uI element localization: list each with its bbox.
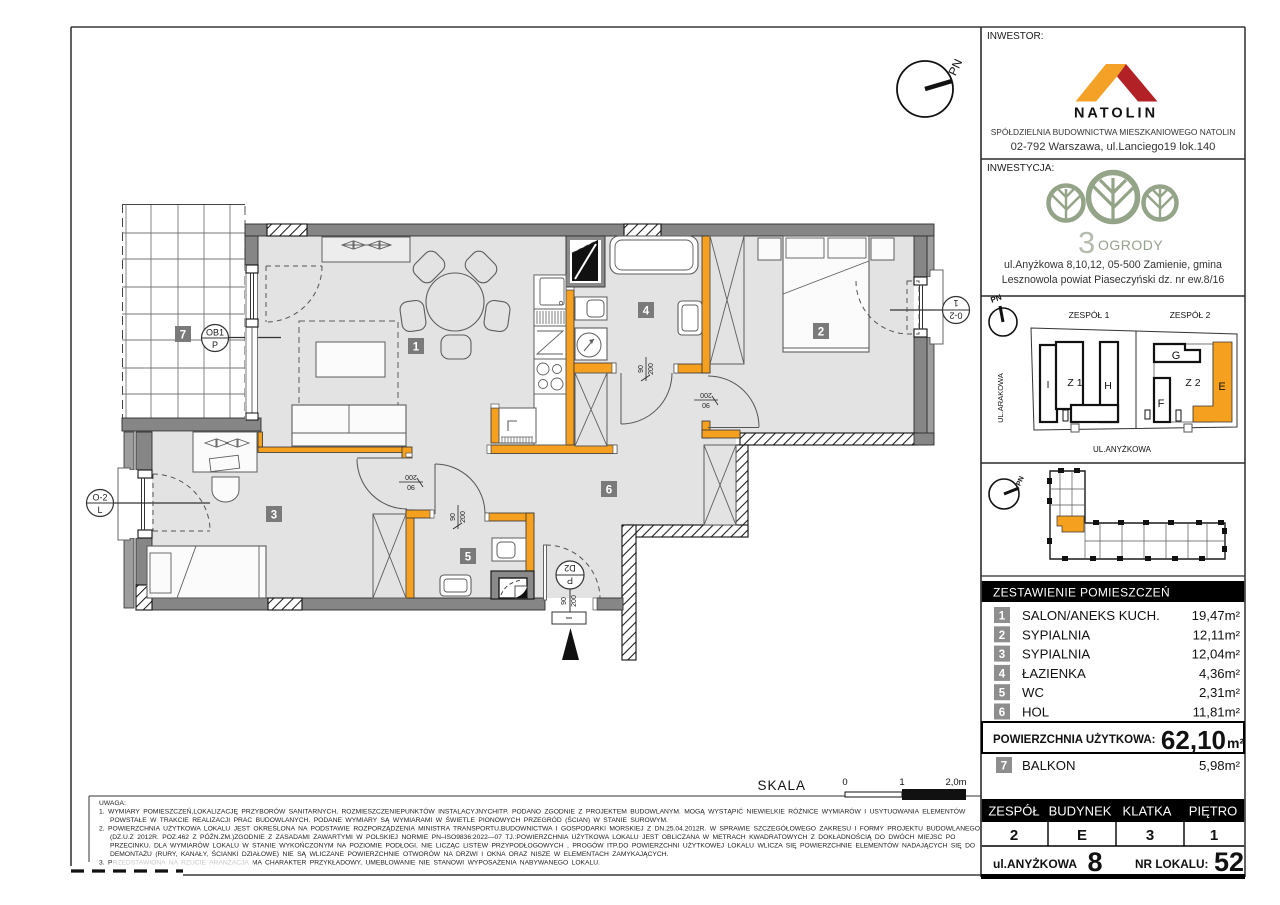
svg-text:H: H — [1104, 380, 1112, 392]
svg-text:ul.ANYŻKOWA: ul.ANYŻKOWA — [993, 856, 1077, 871]
svg-text:4: 4 — [999, 668, 1006, 680]
svg-text:BALKON: BALKON — [1022, 758, 1076, 773]
svg-text:3: 3 — [1146, 827, 1154, 844]
svg-text:1: 1 — [899, 777, 904, 788]
svg-text:4,36m²: 4,36m² — [1199, 666, 1241, 681]
svg-text:Z 2: Z 2 — [1185, 377, 1200, 389]
svg-text:200: 200 — [700, 391, 712, 398]
svg-text:90: 90 — [638, 365, 645, 373]
svg-text:UL.ARAKOWA: UL.ARAKOWA — [996, 373, 1005, 423]
svg-text:SPÓŁDZIELNIA BUDOWNICTWA MIESZ: SPÓŁDZIELNIA BUDOWNICTWA MIESZKANIOWEGO … — [991, 127, 1236, 137]
svg-text:PIĘTRO: PIĘTRO — [1189, 804, 1237, 819]
svg-text:1: 1 — [1210, 827, 1218, 844]
svg-text:90: 90 — [561, 597, 568, 605]
svg-text:02-792 Warszawa, ul.Lanciego19: 02-792 Warszawa, ul.Lanciego19 lok.140 — [1011, 141, 1216, 153]
svg-text:52: 52 — [1214, 847, 1244, 877]
svg-text:INWESTYCJA:: INWESTYCJA: — [987, 163, 1054, 174]
svg-text:2,0m: 2,0m — [945, 777, 966, 788]
svg-text:INWESTOR:: INWESTOR: — [987, 31, 1043, 42]
svg-text:E: E — [1077, 827, 1087, 844]
svg-text:90: 90 — [702, 401, 710, 408]
svg-text:UWAGA:: UWAGA: — [99, 800, 126, 807]
svg-text:1: 1 — [953, 298, 958, 308]
svg-text:ZESPÓŁ 2: ZESPÓŁ 2 — [1170, 310, 1211, 320]
svg-text:ZESPÓŁ: ZESPÓŁ — [988, 804, 1039, 819]
svg-text:SALON/ANEKS KUCH.: SALON/ANEKS KUCH. — [1022, 608, 1160, 623]
svg-text:4: 4 — [643, 306, 650, 318]
svg-text:3: 3 — [999, 649, 1005, 661]
svg-text:PRZECINKU. DLA WYMIARÓW LOKALU: PRZECINKU. DLA WYMIARÓW LOKALU W STANIE … — [110, 841, 975, 850]
svg-text:200: 200 — [648, 363, 655, 375]
svg-text:O-2: O-2 — [92, 493, 107, 503]
svg-text:2,31m²: 2,31m² — [1199, 685, 1241, 700]
svg-text:5,98m²: 5,98m² — [1199, 758, 1241, 773]
svg-text:12,04m²: 12,04m² — [1192, 647, 1241, 662]
svg-text:ŁAZIENKA: ŁAZIENKA — [1022, 666, 1086, 681]
svg-text:0: 0 — [842, 777, 847, 788]
svg-text:L: L — [97, 505, 102, 515]
svg-text:Lesznowola powiat Piaseczyński: Lesznowola powiat Piaseczyński dz. nr ew… — [1002, 274, 1225, 286]
svg-text:P: P — [567, 576, 573, 586]
svg-text:POWSTAŁE W TRAKCIE REALIZACJI: POWSTAŁE W TRAKCIE REALIZACJI PRAC BUDOW… — [110, 815, 668, 824]
svg-text:OB1: OB1 — [206, 328, 224, 338]
svg-text:ul.Anyżkowa 8,10,12, 05-500 Za: ul.Anyżkowa 8,10,12, 05-500 Zamienie, gm… — [1004, 259, 1222, 271]
svg-text:6: 6 — [999, 707, 1005, 719]
svg-text:HOL: HOL — [1022, 705, 1049, 720]
svg-text:P: P — [212, 340, 218, 350]
svg-text:m²: m² — [1227, 735, 1244, 751]
svg-text:D2: D2 — [564, 563, 576, 573]
svg-text:NATOLIN: NATOLIN — [1074, 106, 1158, 122]
svg-text:19,47m²: 19,47m² — [1192, 608, 1241, 623]
svg-text:90: 90 — [450, 513, 457, 521]
svg-text:KLATKA: KLATKA — [1123, 804, 1172, 819]
svg-text:2. POWIERZCHNIA UŻYTKOWA LOKAL: 2. POWIERZCHNIA UŻYTKOWA LOKALU JEST OKR… — [99, 824, 980, 833]
svg-text:ZESTAWIENIE POMIESZCZEŃ: ZESTAWIENIE POMIESZCZEŃ — [993, 585, 1170, 600]
svg-text:90: 90 — [407, 483, 415, 490]
svg-text:5: 5 — [999, 688, 1006, 700]
svg-text:BUDYNEK: BUDYNEK — [1049, 804, 1112, 819]
svg-text:POWIERZCHNIA UŻYTKOWA:: POWIERZCHNIA UŻYTKOWA: — [993, 733, 1155, 746]
svg-text:ZESPÓŁ 1: ZESPÓŁ 1 — [1069, 310, 1110, 320]
svg-text:5: 5 — [465, 552, 472, 564]
svg-text:Z 1: Z 1 — [1067, 377, 1082, 389]
svg-text:7: 7 — [180, 330, 186, 342]
svg-text:DEMONTAŻU (RURY, KANAŁY, ŚCIAN: DEMONTAŻU (RURY, KANAŁY, ŚCIANKI DZIAŁOW… — [110, 849, 669, 858]
svg-text:200: 200 — [571, 595, 578, 607]
svg-text:7: 7 — [1001, 761, 1007, 773]
svg-text:G: G — [1172, 350, 1181, 362]
svg-text:3: 3 — [271, 510, 277, 522]
svg-text:UL.ANYŻKOWA: UL.ANYŻKOWA — [1093, 445, 1152, 454]
svg-text:1: 1 — [413, 342, 420, 354]
svg-text:12,11m²: 12,11m² — [1193, 627, 1241, 642]
svg-text:WC: WC — [1022, 685, 1044, 700]
svg-text:2: 2 — [999, 630, 1005, 642]
svg-text:(DZ.U.Z 2012R. POZ.462 Z PÓŹN.: (DZ.U.Z 2012R. POZ.462 Z PÓŹN.ZM.)ZGODNI… — [110, 832, 955, 841]
svg-text:OGRODY: OGRODY — [1098, 237, 1163, 253]
svg-text:SKALA: SKALA — [757, 778, 806, 793]
svg-text:SYPIALNIA: SYPIALNIA — [1022, 647, 1090, 662]
svg-text:200: 200 — [460, 511, 467, 523]
svg-text:I: I — [1047, 380, 1050, 391]
svg-text:8: 8 — [1087, 847, 1102, 877]
svg-text:2: 2 — [818, 327, 824, 339]
svg-text:11,81m²: 11,81m² — [1193, 705, 1241, 720]
svg-text:NR LOKALU:: NR LOKALU: — [1135, 857, 1208, 871]
svg-text:1. WYMIARY POMIESZCZEŃ,LOKALIZ: 1. WYMIARY POMIESZCZEŃ,LOKALIZACJĘ PRZYB… — [99, 807, 966, 816]
svg-text:E: E — [1218, 381, 1225, 393]
svg-text:SYPIALNIA: SYPIALNIA — [1022, 627, 1090, 642]
svg-text:62,10: 62,10 — [1161, 725, 1226, 755]
svg-text:0-2: 0-2 — [949, 311, 962, 321]
svg-text:3: 3 — [1078, 225, 1095, 260]
svg-text:2: 2 — [1010, 827, 1018, 844]
svg-text:F: F — [1158, 398, 1165, 410]
svg-text:6: 6 — [606, 485, 612, 497]
svg-text:1: 1 — [999, 611, 1006, 623]
svg-text:200: 200 — [405, 473, 417, 480]
